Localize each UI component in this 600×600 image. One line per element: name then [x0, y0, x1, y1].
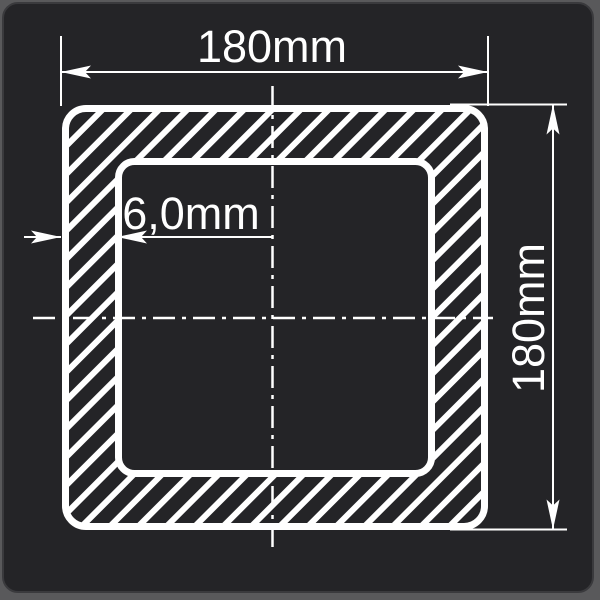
thickness-dimension-label: 6,0mm [122, 188, 260, 239]
cross-section-drawing: 180mm 180mm 6,0mm [0, 0, 600, 600]
height-dimension-label: 180mm [503, 243, 554, 393]
drawing-canvas: 180mm 180mm 6,0mm [0, 0, 600, 600]
width-dimension-label: 180mm [197, 21, 347, 72]
